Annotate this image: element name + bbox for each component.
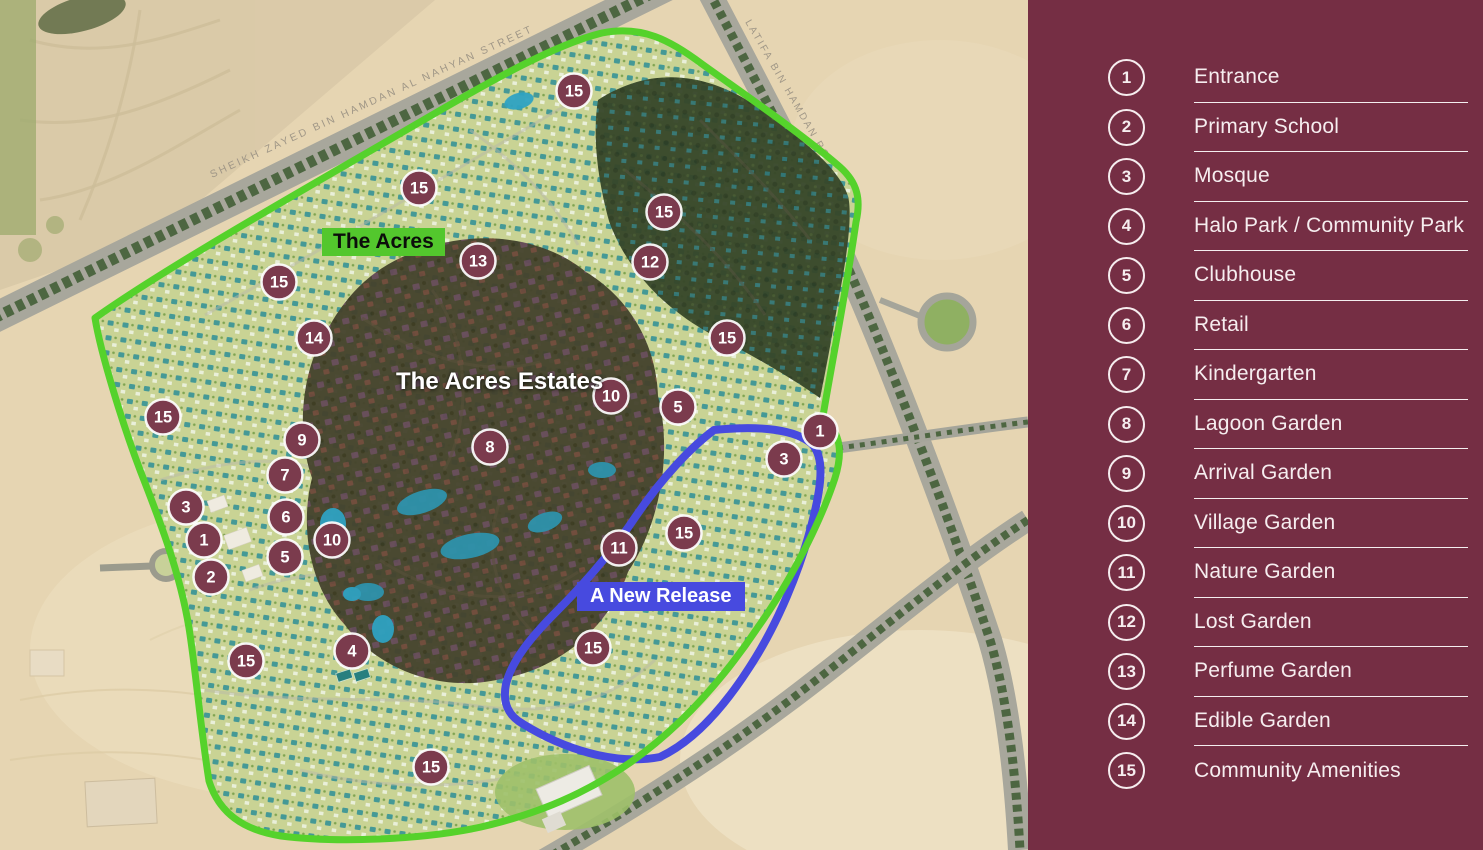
legend-item-number: 10 [1108, 505, 1145, 542]
map-marker-8[interactable]: 8 [473, 430, 508, 465]
legend-item: 3Mosque [1028, 152, 1483, 202]
legend-item: 12Lost Garden [1028, 598, 1483, 648]
masterplan-svg: SHEIKH ZAYED BIN HAMDAN AL NAHYAN STREET… [0, 0, 1028, 850]
svg-text:15: 15 [410, 180, 428, 198]
map-marker-9[interactable]: 9 [285, 423, 320, 458]
legend-item-number: 1 [1108, 59, 1145, 96]
map-marker-15[interactable]: 15 [710, 321, 745, 356]
masterplan-map: SHEIKH ZAYED BIN HAMDAN AL NAHYAN STREET… [0, 0, 1028, 850]
legend-item-label: Community Amenities [1194, 759, 1401, 783]
legend-item-label: Village Garden [1194, 511, 1335, 535]
legend-item-number: 9 [1108, 455, 1145, 492]
svg-text:10: 10 [602, 388, 620, 406]
map-marker-1[interactable]: 1 [803, 414, 838, 449]
legend-item-label: Kindergarten [1194, 362, 1317, 386]
svg-text:2: 2 [206, 569, 215, 587]
legend-item-label: Retail [1194, 313, 1249, 337]
map-marker-15[interactable]: 15 [229, 644, 264, 679]
legend-item-number: 7 [1108, 356, 1145, 393]
legend-item-label: Clubhouse [1194, 263, 1296, 287]
legend-item: 5Clubhouse [1028, 251, 1483, 301]
legend-item-label: Arrival Garden [1194, 461, 1332, 485]
new-release-label: A New Release [577, 582, 745, 611]
legend-item-label: Nature Garden [1194, 560, 1336, 584]
map-marker-15[interactable]: 15 [557, 74, 592, 109]
map-marker-11[interactable]: 11 [602, 531, 637, 566]
svg-text:3: 3 [779, 451, 788, 469]
map-marker-4[interactable]: 4 [335, 634, 370, 669]
legend-item: 14Edible Garden [1028, 697, 1483, 747]
svg-text:1: 1 [199, 532, 208, 550]
svg-text:7: 7 [280, 467, 289, 485]
map-marker-15[interactable]: 15 [262, 265, 297, 300]
svg-text:6: 6 [281, 509, 290, 527]
legend-item-number: 6 [1108, 307, 1145, 344]
map-marker-15[interactable]: 15 [667, 516, 702, 551]
legend-item-number: 4 [1108, 208, 1145, 245]
map-marker-5[interactable]: 5 [661, 390, 696, 425]
legend-item-number: 14 [1108, 703, 1145, 740]
map-marker-15[interactable]: 15 [576, 631, 611, 666]
map-marker-10[interactable]: 10 [315, 523, 350, 558]
estates-name-label: The Acres Estates [396, 368, 603, 396]
svg-text:4: 4 [347, 643, 357, 661]
legend-item: 10Village Garden [1028, 499, 1483, 549]
svg-text:5: 5 [673, 399, 682, 417]
legend-item: 13Perfume Garden [1028, 647, 1483, 697]
legend-item: 7Kindergarten [1028, 350, 1483, 400]
svg-text:13: 13 [469, 253, 487, 271]
legend-item: 2Primary School [1028, 103, 1483, 153]
map-marker-15[interactable]: 15 [414, 750, 449, 785]
svg-text:9: 9 [297, 432, 306, 450]
legend-item: 9Arrival Garden [1028, 449, 1483, 499]
map-marker-3[interactable]: 3 [767, 442, 802, 477]
legend-item-number: 13 [1108, 653, 1145, 690]
legend-item-number: 15 [1108, 752, 1145, 789]
community-name-label: The Acres [322, 228, 445, 256]
legend-item-label: Edible Garden [1194, 709, 1331, 733]
svg-text:11: 11 [610, 540, 627, 558]
legend-panel: 1Entrance2Primary School3Mosque4Halo Par… [1028, 0, 1483, 850]
legend-item-number: 11 [1108, 554, 1145, 591]
map-marker-3[interactable]: 3 [169, 490, 204, 525]
svg-text:15: 15 [565, 83, 583, 101]
map-marker-5[interactable]: 5 [268, 540, 303, 575]
legend-item-label: Lagoon Garden [1194, 412, 1343, 436]
svg-text:3: 3 [181, 499, 190, 517]
svg-text:10: 10 [323, 532, 341, 550]
legend-item: 4Halo Park / Community Park [1028, 202, 1483, 252]
map-marker-15[interactable]: 15 [647, 195, 682, 230]
legend-item-number: 8 [1108, 406, 1145, 443]
map-marker-6[interactable]: 6 [269, 500, 304, 535]
legend-item: 8Lagoon Garden [1028, 400, 1483, 450]
legend-item-label: Lost Garden [1194, 610, 1312, 634]
map-marker-7[interactable]: 7 [268, 458, 303, 493]
svg-text:15: 15 [718, 330, 736, 348]
svg-text:15: 15 [422, 759, 440, 777]
legend-item-number: 5 [1108, 257, 1145, 294]
svg-text:12: 12 [641, 254, 659, 272]
svg-text:15: 15 [655, 204, 673, 222]
map-marker-1[interactable]: 1 [187, 523, 222, 558]
map-marker-12[interactable]: 12 [633, 245, 668, 280]
map-marker-13[interactable]: 13 [461, 244, 496, 279]
legend-item-number: 3 [1108, 158, 1145, 195]
legend-item-label: Halo Park / Community Park [1194, 214, 1464, 238]
svg-text:1: 1 [815, 423, 824, 441]
legend-item-label: Entrance [1194, 65, 1280, 89]
svg-text:5: 5 [280, 549, 289, 567]
svg-text:8: 8 [485, 439, 494, 457]
svg-text:15: 15 [237, 653, 255, 671]
legend-item: 1Entrance [1028, 53, 1483, 103]
map-marker-15[interactable]: 15 [402, 171, 437, 206]
legend-item-number: 2 [1108, 109, 1145, 146]
legend-item-label: Perfume Garden [1194, 659, 1352, 683]
map-marker-2[interactable]: 2 [194, 560, 229, 595]
svg-text:15: 15 [154, 409, 172, 427]
legend-item-number: 12 [1108, 604, 1145, 641]
legend-item-label: Mosque [1194, 164, 1270, 188]
legend-item: 6Retail [1028, 301, 1483, 351]
svg-text:15: 15 [675, 525, 693, 543]
legend-item: 15Community Amenities [1028, 746, 1483, 796]
svg-text:15: 15 [584, 640, 602, 658]
legend-list: 1Entrance2Primary School3Mosque4Halo Par… [1028, 0, 1483, 796]
svg-text:14: 14 [305, 330, 324, 348]
legend-item-label: Primary School [1194, 115, 1339, 139]
map-marker-15[interactable]: 15 [146, 400, 181, 435]
svg-text:15: 15 [270, 274, 288, 292]
map-marker-14[interactable]: 14 [297, 321, 332, 356]
legend-item: 11Nature Garden [1028, 548, 1483, 598]
